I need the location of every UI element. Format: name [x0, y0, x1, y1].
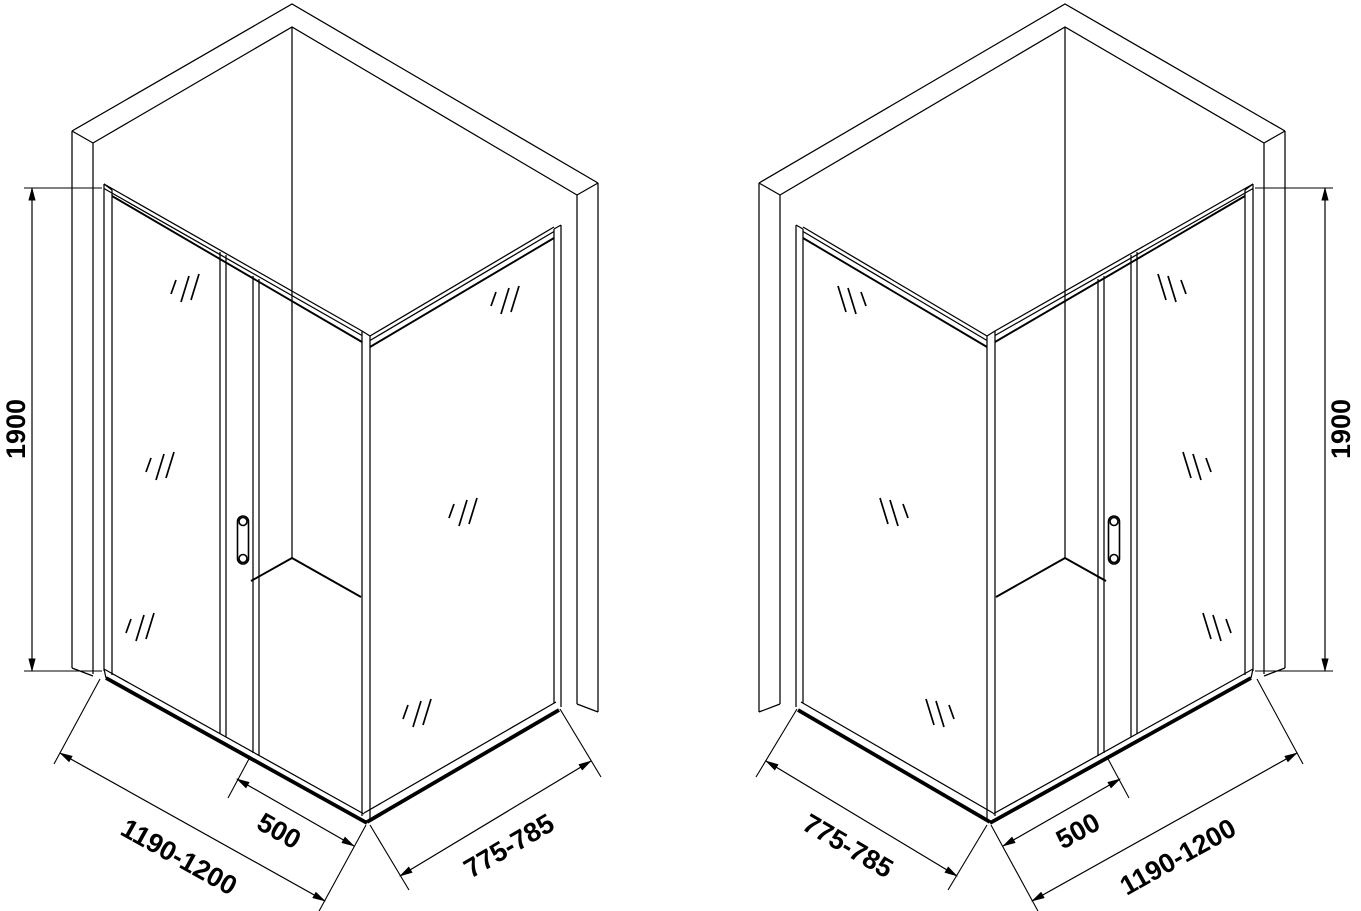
technical-drawing-canvas: 1900 1190-1200 500 775-785 1900 1190-120… — [0, 0, 1361, 911]
dimension-front-width-label-left: 1190-1200 — [116, 813, 242, 901]
dimension-front-width-label-right: 1190-1200 — [1115, 813, 1241, 901]
dimension-height-label-left: 1900 — [1, 399, 31, 459]
shower-enclosure-technical-drawing: 1900 1190-1200 500 775-785 1900 1190-120… — [0, 0, 1361, 911]
enclosure-view-left — [24, 4, 601, 911]
dimension-side-depth-label-right: 775-785 — [798, 808, 899, 884]
dimension-height-label-right: 1900 — [1326, 399, 1356, 459]
enclosure-view-right — [756, 4, 1333, 911]
dimension-side-depth-label-left: 775-785 — [459, 808, 560, 884]
